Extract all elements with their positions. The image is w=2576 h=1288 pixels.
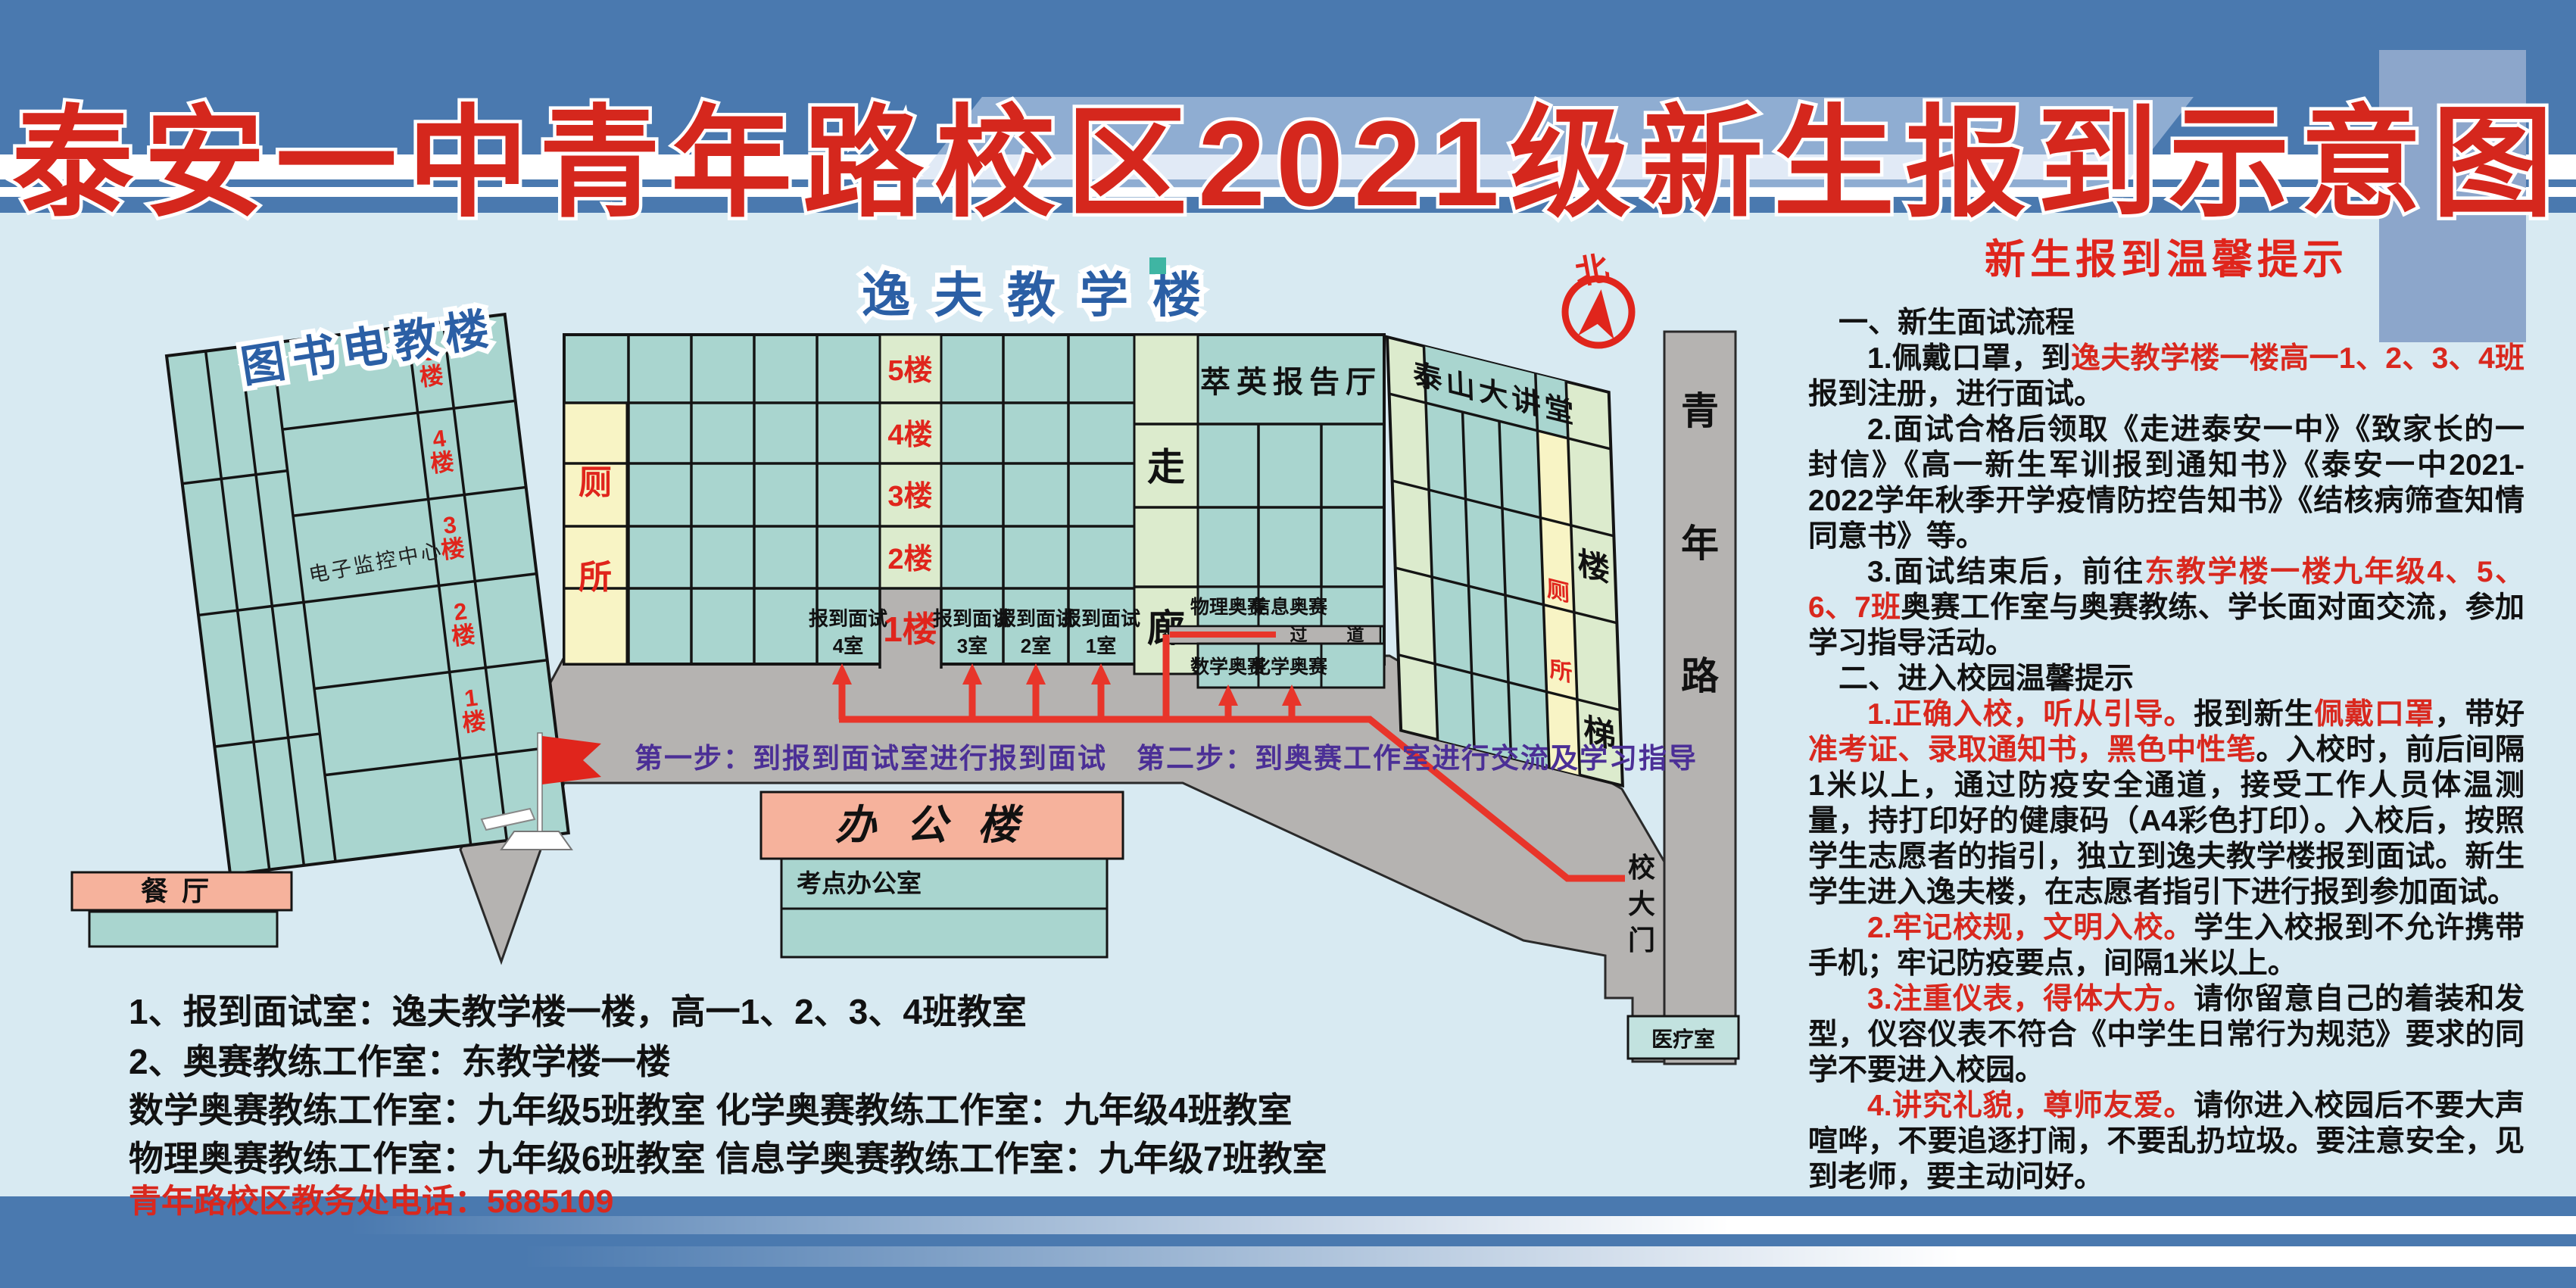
svg-text:道: 道 (1347, 625, 1364, 644)
svg-text:4室: 4室 (833, 635, 863, 657)
tips-panel: 新生报到温馨提示 一、新生面试流程1.佩戴口罩，到逸夫教学楼一楼高一1、2、3、… (1808, 226, 2525, 1195)
tips-paragraph-5: 1.正确入校，听从引导。报到新生佩戴口罩，带好准考证、录取通知书，黑色中性笔。入… (1808, 697, 2525, 910)
yifu-building: 厕 所 5楼 4楼 3楼 2楼 1楼 走 廊 萃英报告厅 报到面试4室 报到面试… (564, 335, 1384, 688)
tips-paragraph-3: 3.面试结束后，前往东教学楼一楼九年级4、5、6、7班奥赛工作室与奥赛教练、学长… (1808, 554, 2525, 661)
tips-paragraph-1: 1.佩戴口罩，到逸夫教学楼一楼高一1、2、3、4班报到注册，进行面试。 (1808, 341, 2525, 412)
svg-text:1室: 1室 (1086, 635, 1116, 657)
yifu-title: 逸夫教学楼 (862, 268, 1225, 323)
office-building: 办公楼 考点办公室 (761, 792, 1123, 957)
svg-text:楼: 楼 (460, 707, 487, 737)
svg-text:楼: 楼 (450, 621, 476, 650)
svg-text:4楼: 4楼 (887, 419, 932, 451)
taishan-building: 泰山大讲堂 厕 所 楼 梯 (1387, 337, 1623, 786)
svg-text:化学奥赛: 化学奥赛 (1252, 656, 1328, 678)
legend-line-1: 1、报到面试室：逸夫教学楼一楼，高一1、2、3、4班教室 (129, 984, 1027, 1034)
svg-text:楼: 楼 (429, 448, 455, 478)
legend-line-2: 2、奥赛教练工作室：东教学楼一楼 (129, 1034, 671, 1084)
route-steps-caption: 第一步：到报到面试室进行报到面试 第二步：到奥赛工作室进行交流及学习指导 (635, 742, 1698, 774)
svg-text:2楼: 2楼 (887, 544, 932, 575)
poster: 泰安一中青年路校区2021级新生报到示意图 青 年 路 校 大 门 医疗室 (0, 0, 2576, 1288)
yifu-toilet-column (564, 403, 627, 664)
svg-text:报到面试: 报到面试 (1062, 607, 1140, 630)
corridor-char1: 走 (1147, 446, 1185, 488)
cuiying-hall-label: 萃英报告厅 (1200, 366, 1382, 399)
legend-line-3b: 化学奥赛教练工作室：九年级4班教室 (716, 1083, 1293, 1133)
page-title: 泰安一中青年路校区2021级新生报到示意图 (0, 65, 2576, 241)
yifu-toilet-char2: 所 (579, 559, 612, 596)
legend-phone: 青年路校区教务处电话：5885109 (129, 1175, 613, 1222)
svg-text:1楼: 1楼 (883, 610, 937, 649)
library-building: 5楼 4楼 3楼 2楼 1楼 电子监控中心 (167, 314, 569, 875)
svg-text:信息奥赛: 信息奥赛 (1252, 596, 1328, 618)
tips-paragraph-7: 3.注重仪表，得体大方。请你留意自己的着装和发型，仪容仪表不符合《中学生日常行为… (1808, 981, 2525, 1088)
svg-text:校: 校 (1628, 852, 1655, 883)
road-char-lu: 路 (1681, 655, 1720, 697)
yifu-toilet-char1: 厕 (579, 464, 612, 501)
svg-text:过: 过 (1290, 625, 1308, 644)
svg-text:3室: 3室 (957, 635, 987, 657)
olympiad-rooms: 物理奥赛 信息奥赛 过 道 数学奥赛 化学奥赛 (1168, 587, 1384, 688)
svg-text:报到面试: 报到面试 (809, 607, 887, 630)
canteen-lower-block (89, 912, 277, 947)
legend-line-4a: 物理奥赛教练工作室：九年级6班教室 (129, 1131, 706, 1181)
medical-room: 医疗室 (1628, 1016, 1739, 1059)
svg-text:2室: 2室 (1021, 635, 1051, 657)
exam-office-label: 考点办公室 (797, 869, 922, 897)
qingnian-road: 青 年 路 (1664, 332, 1736, 1064)
tips-paragraph-6: 2.牢记校规，文明入校。学生入校报到不允许携带手机；牢记防疫要点，间隔1米以上。 (1808, 910, 2525, 981)
small-teal-marker (1149, 257, 1166, 274)
legend-line-3a: 数学奥赛教练工作室：九年级5班教室 (129, 1083, 706, 1133)
tips-paragraph-0: 一、新生面试流程 (1808, 305, 2525, 341)
svg-text:门: 门 (1628, 925, 1655, 956)
svg-text:餐厅: 餐厅 (141, 875, 223, 906)
svg-text:5楼: 5楼 (887, 355, 932, 387)
road-char-nian: 年 (1681, 522, 1719, 565)
tips-paragraph-2: 2.面试合格后领取《走进泰安一中》《致家长的一封信》《高一新生军训报到通知书》《… (1808, 412, 2525, 554)
school-gate-label: 校 大 门 (1628, 852, 1655, 956)
canteen: 餐厅 (72, 872, 292, 947)
tips-paragraphs: 一、新生面试流程1.佩戴口罩，到逸夫教学楼一楼高一1、2、3、4班报到注册，进行… (1808, 305, 2525, 1195)
svg-text:3楼: 3楼 (887, 481, 932, 513)
road-char-qing: 青 (1681, 390, 1719, 432)
tips-paragraph-8: 4.讲究礼貌，尊师友爱。请你进入校园后不要大声喧哗，不要追逐打闹，不要乱扔垃圾。… (1808, 1088, 2525, 1195)
north-compass-icon: 北 (1565, 250, 1632, 345)
svg-text:医疗室: 医疗室 (1651, 1027, 1715, 1051)
office-title-label: 办公楼 (835, 803, 1049, 848)
svg-text:大: 大 (1628, 888, 1655, 919)
tips-paragraph-4: 二、进入校园温馨提示 (1808, 661, 2525, 697)
svg-text:楼: 楼 (418, 362, 444, 391)
legend-line-4b: 信息学奥赛教练工作室：九年级7班教室 (716, 1131, 1327, 1181)
